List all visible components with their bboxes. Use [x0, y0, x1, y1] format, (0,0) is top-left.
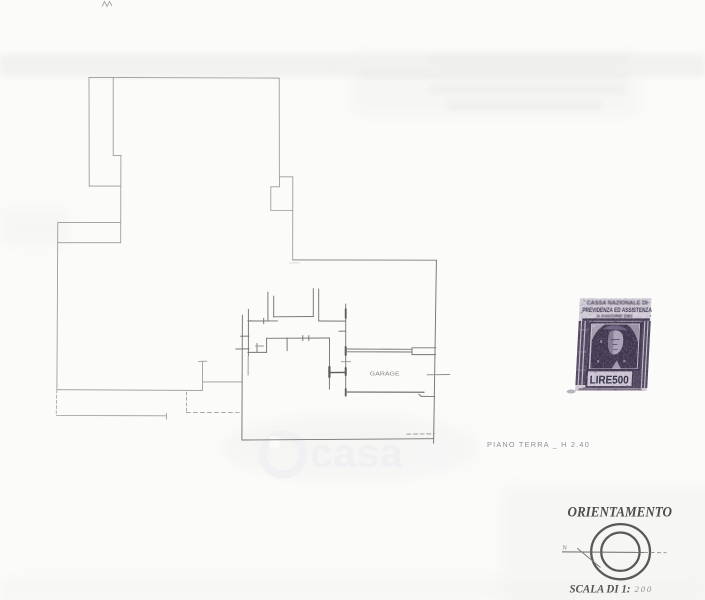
- svg-text:200: 200: [635, 584, 654, 594]
- svg-text:PIANO TERRA _ H 2.40: PIANO TERRA _ H 2.40: [487, 440, 590, 449]
- svg-text:.it: .it: [403, 430, 440, 476]
- svg-text:SCALA DI 1:: SCALA DI 1:: [570, 581, 631, 595]
- svg-text:casa: casa: [310, 430, 404, 476]
- svg-text:GARAGE: GARAGE: [370, 371, 400, 377]
- svg-text:ORIENTAMENTO: ORIENTAMENTO: [568, 505, 673, 521]
- svg-text:N: N: [563, 546, 568, 552]
